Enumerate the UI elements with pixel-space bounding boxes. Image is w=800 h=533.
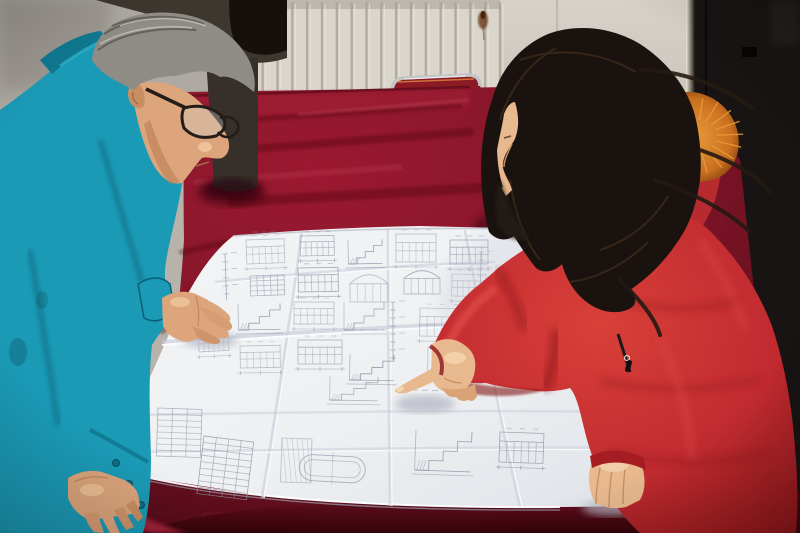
glasses-lens-far (218, 117, 238, 137)
blueprint-cluster-arch (350, 275, 388, 302)
fur-stroke (566, 280, 579, 285)
paper-shade-right (440, 220, 680, 380)
velvet-top (20, 85, 800, 533)
hand-knuckle-highlight (444, 352, 466, 364)
fur-stroke (599, 267, 612, 272)
blueprint-paper (118, 220, 680, 516)
table-corner-bright-edge (46, 486, 190, 533)
fur-stroke (654, 142, 678, 150)
face-profile (495, 102, 518, 196)
background-worker-jacket (96, 0, 287, 63)
fur-stroke (559, 272, 576, 274)
zipper-pull (625, 360, 633, 373)
hand-highlight (170, 297, 190, 307)
wall-left (0, 0, 800, 160)
blueprint-cluster-elev (297, 231, 338, 263)
cuff-fold (90, 430, 148, 462)
velvet-streaks (157, 100, 640, 525)
shoulder-highlight (60, 40, 104, 66)
blueprint-cluster-table (250, 275, 285, 296)
radiator-bottom-shade (233, 92, 500, 116)
fur-stroke (676, 150, 688, 169)
fur-stroke (672, 104, 686, 122)
velvet-streak (262, 521, 520, 525)
radiator-slats (233, 2, 503, 112)
fur-stroke (663, 147, 682, 162)
fur-stroke (717, 134, 743, 135)
right-worker (395, 28, 797, 533)
blueprint-cluster-elev (393, 230, 439, 269)
velvet-streak (212, 132, 470, 152)
zipper-ring-icon (625, 356, 630, 361)
ear-inner-line (133, 92, 138, 104)
door-edge-highlight (686, 0, 695, 175)
teal-jacket-body (0, 31, 186, 533)
background-worker-hair (229, 0, 287, 55)
blueprint-cluster-elev (447, 236, 491, 271)
background-worker (96, 0, 287, 198)
background-worker-arm (206, 56, 258, 191)
folded-fingers (442, 384, 477, 401)
blueprint-cluster-elev (195, 326, 233, 359)
blueprint-cluster-col (390, 301, 405, 360)
blueprint-cluster-elev (291, 298, 337, 331)
blueprint-cluster-oval (298, 451, 366, 486)
blueprint-cluster-col (222, 252, 239, 299)
fur-stroke (593, 263, 598, 270)
chin-neck-shadow (495, 180, 530, 240)
woman-hair (481, 28, 701, 312)
velvet-streak (182, 242, 228, 252)
fur-stroke (716, 141, 741, 147)
left-worker-upper-hand (138, 278, 232, 344)
dark-door (686, 0, 800, 533)
fur-stroke (653, 125, 678, 131)
blueprint-cluster-elev (295, 263, 342, 299)
cuff-snap-2 (126, 481, 133, 488)
lower-knuckle-line (74, 477, 108, 482)
fur-stroke (706, 102, 718, 121)
jacket-smudge-2 (36, 291, 48, 309)
face-framing-strand (494, 100, 500, 188)
fur-stroke (712, 110, 731, 125)
hand-back (431, 339, 475, 393)
resting-finger-lines (596, 468, 625, 507)
velvet-streak (196, 167, 400, 182)
chair-metal-glint (404, 76, 466, 79)
fur-stroke (651, 137, 677, 138)
lower-finger-1 (84, 512, 104, 533)
blueprint-cluster-stair (345, 239, 385, 268)
door-reflection (770, 0, 800, 45)
fur-stroke (699, 98, 702, 119)
nose-highlight (198, 142, 212, 152)
velvet-streak (205, 106, 460, 122)
blueprint-cluster-stair (341, 302, 387, 334)
finger-crease (444, 378, 462, 383)
fingernail (395, 385, 404, 393)
fur-trim (650, 92, 739, 182)
sleeve-highlight (445, 288, 496, 350)
blueprint-cluster-col (477, 251, 493, 318)
fur-trim-lower (560, 263, 616, 292)
glasses-lens-near (182, 106, 225, 137)
fur-stroke (582, 263, 586, 271)
gray-hair (92, 13, 255, 92)
chair (392, 74, 481, 96)
blueprint-cluster-stair (327, 376, 381, 405)
background-worker-shadow (206, 178, 258, 198)
nose-shadow-line (504, 144, 512, 167)
woman-face (494, 100, 530, 240)
wall-corner-shade (0, 0, 110, 90)
upper-finger-3 (196, 316, 229, 338)
fur-strokes (558, 98, 743, 289)
radiator-top-shadow (233, 0, 500, 9)
fur-stroke (660, 113, 681, 126)
sleeve-underside-shadow (441, 375, 545, 396)
upper-hand-palm (162, 292, 211, 342)
hair-sheen-strands (500, 48, 668, 282)
wall-right (500, 0, 690, 160)
paper-sheet (118, 226, 668, 507)
shadow-under-worker (198, 178, 266, 206)
ear (128, 84, 145, 108)
door-latch-notch (742, 47, 757, 57)
upper-finger-1 (196, 296, 230, 323)
blueprint-cluster-hatch (280, 438, 313, 483)
blueprint-drawings (156, 230, 626, 500)
cuff-snap-1 (113, 460, 120, 467)
velvet-streak (300, 100, 468, 114)
zipper-line (618, 334, 630, 372)
photo-canvas (0, 0, 800, 533)
shadow-left-hand-upper (182, 332, 238, 348)
velvet-streak (502, 120, 640, 136)
left-worker (0, 13, 255, 533)
shadow-under-chin (474, 213, 522, 243)
paper-bottom-edge-shadow (150, 481, 560, 510)
blueprint-cluster-stair (235, 303, 284, 334)
mouth-line (196, 162, 209, 166)
elbow-crease (545, 330, 556, 390)
upper-finger-4 (192, 326, 220, 344)
lower-finger-3 (114, 507, 134, 530)
red-coat (434, 212, 797, 533)
blueprint-cluster-elev (496, 428, 547, 471)
blueprint-cluster-table (156, 408, 202, 458)
fur-stroke (708, 150, 722, 168)
zipper (618, 334, 632, 373)
fur-stroke (715, 121, 739, 129)
paper-top-edge (233, 228, 500, 236)
chair-metal-frame (392, 75, 480, 92)
fur-stroke (602, 278, 619, 280)
lower-hand-back (68, 471, 140, 520)
velvet-streak (232, 188, 480, 202)
lower-finger-4 (126, 500, 143, 522)
velvet-front-apron (140, 504, 655, 533)
photo-blueprint-review (0, 0, 800, 533)
right-cuff (138, 278, 174, 321)
coat-highlights (660, 240, 746, 460)
velvet-streak (520, 104, 620, 112)
fur-stroke (701, 152, 707, 173)
coat-quilt-folds (600, 300, 770, 462)
table-far-rim (186, 87, 470, 96)
knuckle-line (196, 296, 199, 326)
fur-stroke (592, 282, 596, 290)
blueprint-cluster-stair (346, 354, 397, 385)
shadow-pointing-hand (395, 395, 455, 413)
jacket-seam-right-arm (100, 140, 142, 282)
cuff-edge (430, 346, 442, 375)
radiator (233, 0, 500, 114)
blueprint-cluster-arch (404, 271, 440, 294)
upper-finger-2 (198, 306, 232, 331)
chair-warm-glint (398, 79, 474, 82)
fur-stroke (568, 266, 580, 272)
hair-strands-dark (98, 17, 204, 50)
fur-stroke (602, 273, 620, 275)
blueprint-cluster-stair (411, 430, 474, 476)
jacket-seam-left-arm (30, 250, 58, 425)
resting-knuckle-highlight (600, 460, 628, 472)
hair-strands-light (100, 19, 206, 45)
index-finger (395, 364, 444, 393)
left-worker-lower-hand (68, 471, 143, 533)
jacket-smudge (9, 338, 27, 366)
blueprint-cluster-stair (424, 346, 469, 377)
velvet-streak (157, 362, 184, 400)
hair-wisps (620, 70, 770, 335)
blueprint-cluster-elev (416, 304, 467, 344)
hood (608, 101, 720, 252)
blueprint-cluster-table (595, 438, 626, 461)
blueprint-cluster-table (197, 436, 254, 500)
face (132, 82, 229, 184)
door-panel (686, 0, 800, 533)
shadow-right-hand (582, 500, 642, 516)
paper-creases (132, 230, 630, 506)
blueprint-cluster-elev (295, 336, 345, 371)
resting-cuff-edge (590, 450, 646, 470)
paper-bottom-fold-light (150, 478, 560, 507)
fur-stroke (558, 277, 576, 279)
fur-stroke (687, 99, 693, 120)
cuff-snap-3 (138, 502, 145, 509)
background-wall (0, 0, 800, 160)
fur-stroke (598, 280, 610, 286)
fur-stroke (713, 146, 734, 159)
velvet-top-sheen (186, 89, 470, 118)
velvet-streak (205, 512, 420, 516)
left-worker-head (92, 13, 255, 184)
resting-hand (589, 450, 646, 508)
blueprint-cluster-elev (237, 341, 284, 375)
lower-hand-highlight (80, 484, 104, 496)
armpit-crease (498, 270, 524, 330)
glasses-temple-arm (146, 89, 186, 108)
eyebrow-hint (504, 136, 511, 138)
blueprint-cluster-elev (448, 270, 489, 304)
velvet-table (20, 85, 800, 533)
glasses (146, 89, 238, 137)
teal-collar (40, 31, 108, 74)
rust-stain (478, 11, 488, 40)
fur-stroke (580, 282, 585, 289)
photo-vignette (0, 0, 800, 533)
pointing-hand (395, 339, 477, 401)
jaw-shadow (144, 120, 180, 184)
velvet-streak (162, 300, 198, 330)
blueprint-cluster-elev (243, 235, 288, 272)
lower-finger-2 (100, 511, 120, 533)
fur-stroke (691, 152, 694, 173)
chair-cushion (393, 74, 481, 96)
resting-hand-back (589, 454, 645, 508)
